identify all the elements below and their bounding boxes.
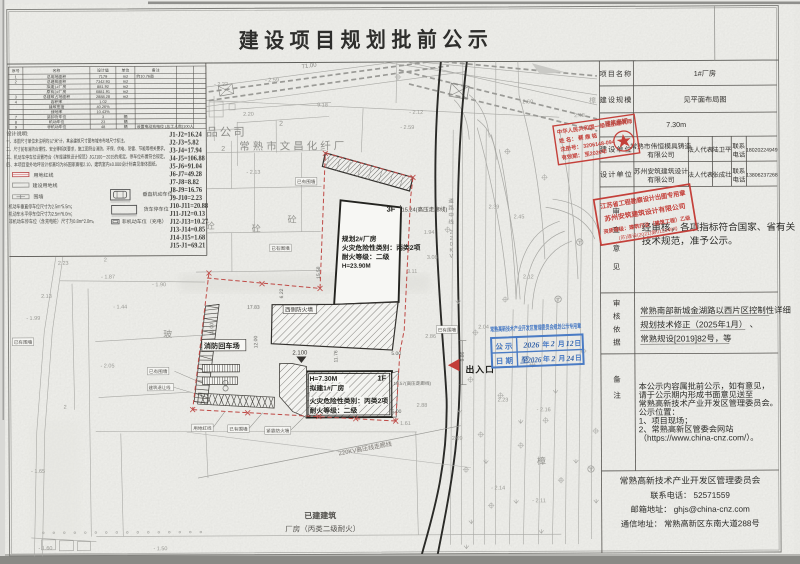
svg-text:15.58: 15.58	[316, 266, 322, 279]
svg-text:路: 路	[448, 204, 454, 212]
svg-text:- 1.61: - 1.61	[397, 421, 411, 427]
svg-text:常熟高新技术产业开发区管理委员会: 常熟高新技术产业开发区管理委员会	[620, 474, 761, 486]
svg-text:9: 9	[15, 125, 17, 130]
svg-text:单位: 单位	[121, 68, 129, 73]
svg-text:48: 48	[101, 124, 105, 129]
svg-text:年: 年	[543, 354, 550, 363]
svg-text:序号: 序号	[12, 68, 20, 73]
svg-text:见: 见	[613, 262, 621, 271]
svg-text:常熟高新技术产业开发区管理委员会。: 常熟高新技术产业开发区管理委员会。	[639, 398, 778, 409]
svg-text:月: 月	[557, 355, 565, 363]
svg-text:H=7.30M: H=7.30M	[309, 376, 337, 383]
svg-text:2.09: 2.09	[452, 436, 463, 442]
svg-text:规划技术修正（2025年1月） 、: 规划技术修正（2025年1月） 、	[640, 319, 758, 330]
svg-text:24: 24	[565, 354, 574, 363]
svg-text:电话: 电话	[732, 150, 745, 159]
svg-text:15.24(高压走廊线): 15.24(高压走廊线)	[402, 205, 448, 213]
svg-text:2.20: 2.20	[243, 112, 254, 118]
svg-text:耐火等级：二级: 耐火等级：二级	[310, 406, 358, 415]
svg-text:约10.76亩: 约10.76亩	[136, 74, 154, 79]
svg-text:- 1.50: - 1.50	[153, 546, 167, 552]
svg-text:日 期: 日 期	[496, 355, 514, 366]
svg-text:耐火等级：二级: 耐火等级：二级	[342, 252, 390, 261]
svg-text:砼: 砼	[288, 214, 297, 225]
svg-text:H=23.90M: H=23.90M	[342, 263, 371, 270]
svg-text:2.45: 2.45	[514, 214, 525, 220]
svg-text:备注: 备注	[152, 67, 160, 72]
svg-text:樟: 樟	[537, 455, 546, 466]
svg-text:公 示: 公 示	[495, 342, 513, 352]
svg-text:- 2.14: - 2.14	[491, 485, 505, 491]
svg-text:日: 日	[574, 339, 581, 347]
svg-text:常熟市文昌化纤厂: 常熟市文昌化纤厂	[239, 139, 347, 153]
svg-text:樟: 樟	[589, 96, 596, 105]
svg-text:9.86: 9.86	[460, 351, 466, 361]
svg-text:设计单位: 设计单位	[600, 170, 633, 179]
svg-text:9.18: 9.18	[317, 102, 328, 108]
svg-text:砼: 砼	[252, 223, 261, 234]
svg-text:厂房（丙类二级耐火）: 厂房（丙类二级耐火）	[285, 523, 360, 533]
svg-text:审: 审	[613, 298, 621, 308]
svg-text:已建建筑: 已建建筑	[304, 510, 336, 520]
svg-text:- 1.90: - 1.90	[152, 282, 166, 288]
svg-text:- 2.59: - 2.59	[400, 125, 414, 131]
svg-text:2: 2	[104, 258, 107, 264]
svg-text:联系: 联系	[732, 141, 745, 150]
svg-text:- 1.65: - 1.65	[31, 469, 45, 475]
svg-text:- 1.87: - 1.87	[101, 274, 115, 280]
svg-text:2: 2	[550, 354, 555, 363]
svg-text:联系: 联系	[733, 166, 746, 175]
svg-text:5.00: 5.00	[391, 351, 401, 357]
svg-text:3F: 3F	[387, 205, 396, 214]
svg-text:建 设 项 目 规 划 批 前 公 示: 建 设 项 目 规 划 批 前 公 示	[239, 28, 488, 53]
svg-text:7.30m: 7.30m	[666, 120, 686, 129]
svg-text:围墙: 围墙	[34, 193, 44, 200]
svg-text:- 2.13: - 2.13	[246, 170, 260, 176]
svg-text:规划2#厂房: 规划2#厂房	[342, 234, 377, 243]
svg-text:建设用地线: 建设用地线	[32, 182, 57, 189]
svg-text:2.23: 2.23	[58, 261, 69, 267]
svg-text:货车停车位: 货车停车位	[144, 206, 169, 213]
svg-text:电话: 电话	[733, 175, 746, 184]
svg-text:- 2.11: - 2.11	[532, 498, 546, 504]
svg-text:11.76: 11.76	[333, 350, 339, 362]
svg-text:火灾危险性类别：丙类2项: 火灾危险性类别：丙类2项	[310, 396, 389, 405]
svg-text:6.22: 6.22	[279, 288, 285, 298]
svg-text:通信地址： 常熟高新区东南大道288号: 通信地址： 常熟高新区东南大道288号	[621, 518, 760, 529]
svg-text:见平面布局图: 见平面布局图	[683, 95, 726, 104]
svg-text:垂直机动车位: 垂直机动车位	[143, 191, 173, 198]
svg-text:备: 备	[613, 374, 621, 384]
svg-text:2.04: 2.04	[478, 325, 489, 331]
svg-text:2.100: 2.100	[292, 350, 308, 356]
svg-text:2.88: 2.88	[417, 403, 428, 409]
svg-text:用地红线: 用地红线	[33, 172, 53, 179]
svg-text:月: 月	[557, 340, 565, 348]
svg-text:2.48: 2.48	[574, 113, 585, 119]
svg-text:2.23: 2.23	[498, 397, 509, 403]
svg-text:苏州安筑建筑设计: 苏州安筑建筑设计	[634, 166, 689, 175]
svg-text:道: 道	[448, 197, 454, 205]
svg-text:年: 年	[542, 340, 549, 349]
svg-text:常熟南部新城金湖路以西片区控制性详细: 常熟南部新城金湖路以西片区控制性详细	[640, 305, 791, 316]
svg-text:意: 意	[613, 243, 621, 253]
svg-text:拟建1#厂房: 拟建1#厂房	[310, 383, 345, 392]
svg-text:消防回车场: 消防回车场	[204, 341, 240, 350]
svg-text:张成壮: 张成壮	[712, 170, 732, 179]
svg-text:常熟规设[2019]82号，等: 常熟规设[2019]82号，等	[640, 333, 731, 343]
svg-text:设计说明:: 设计说明:	[6, 129, 28, 137]
svg-text:设置电动充电位 (总工人数)100人: 设置电动充电位 (总工人数)100人	[137, 124, 194, 129]
svg-text:名称: 名称	[52, 68, 60, 73]
svg-text:法人代表: 法人代表	[688, 145, 714, 154]
svg-text:品公司: 品公司	[206, 126, 247, 139]
svg-text:- 1.44: - 1.44	[113, 304, 127, 310]
svg-text:2: 2	[279, 121, 283, 128]
svg-text:2: 2	[221, 146, 225, 153]
svg-text:项目名称: 项目名称	[600, 69, 633, 78]
svg-text:5.00: 5.00	[392, 409, 402, 415]
svg-text:- 2.12: - 2.12	[409, 110, 423, 116]
svg-text:中: 中	[448, 211, 454, 219]
svg-text:有限公司: 有限公司	[647, 175, 674, 184]
svg-text:有限公司: 有限公司	[647, 150, 674, 159]
svg-text:2026: 2026	[526, 355, 541, 365]
svg-text:V: V	[450, 254, 454, 260]
svg-text:1#厂房: 1#厂房	[694, 69, 716, 78]
svg-text:陆卫平: 陆卫平	[712, 145, 732, 154]
svg-text:12: 12	[566, 339, 574, 348]
svg-text:12.00: 12.00	[253, 336, 259, 349]
svg-text:2: 2	[15, 79, 17, 84]
svg-text:线: 线	[448, 218, 454, 226]
svg-text:- 2.05: - 2.05	[100, 363, 114, 369]
svg-text:依: 依	[613, 324, 621, 334]
svg-text:17.83: 17.83	[247, 305, 260, 311]
svg-text:13806237268: 13806237268	[746, 173, 778, 179]
svg-text:- 2.22: - 2.22	[214, 82, 228, 88]
svg-text:1.94: 1.94	[424, 230, 435, 236]
svg-text:2.39: 2.39	[489, 204, 500, 210]
svg-text:J15-J1=69.21: J15-J1=69.21	[170, 240, 206, 249]
svg-text:2.13: 2.13	[41, 294, 52, 300]
svg-text:- 2.59: - 2.59	[265, 78, 279, 84]
svg-text:18020224949: 18020224949	[746, 148, 778, 154]
svg-text:- 1.60: - 1.60	[38, 546, 52, 552]
svg-text:3.08: 3.08	[427, 255, 438, 261]
svg-text:注: 注	[613, 390, 621, 400]
svg-text:联系电话： 52571559: 联系电话： 52571559	[650, 490, 730, 500]
svg-text:据: 据	[613, 338, 621, 347]
svg-text:设计值: 设计值	[97, 68, 109, 73]
svg-text:1F: 1F	[377, 374, 386, 383]
svg-text:- 2.60: - 2.60	[519, 99, 533, 105]
svg-text:出入口: 出入口	[465, 364, 494, 375]
svg-text:3.11: 3.11	[407, 269, 417, 275]
svg-text:2: 2	[550, 339, 555, 348]
svg-text:2: 2	[64, 405, 67, 411]
svg-text:建设规模: 建设规模	[600, 95, 633, 104]
svg-text:2.12: 2.12	[523, 274, 534, 280]
svg-text:m2: m2	[123, 94, 128, 99]
svg-text:- 2.16: - 2.16	[537, 407, 551, 413]
svg-text:辆: 辆	[124, 124, 128, 129]
svg-text:日: 日	[575, 354, 582, 362]
svg-text:核: 核	[613, 311, 621, 321]
svg-text:玻: 玻	[163, 328, 172, 339]
svg-text:非机动车位（充电）: 非机动车位（充电）	[122, 218, 167, 225]
svg-text:法人代表: 法人代表	[688, 170, 714, 179]
svg-text:（https://www.china-cnz.com/）。: （https://www.china-cnz.com/）。	[639, 433, 759, 443]
svg-text:西侧防火墙: 西侧防火墙	[285, 305, 313, 313]
svg-text:2026: 2026	[522, 340, 539, 350]
svg-text:- 1.99: - 1.99	[26, 316, 40, 322]
svg-text:非机动车位: 非机动车位	[47, 124, 67, 129]
svg-text:2.86: 2.86	[425, 334, 436, 340]
svg-text:12.00: 12.00	[209, 323, 215, 336]
svg-text:邮箱地址： ghjs@china-cnz.com: 邮箱地址： ghjs@china-cnz.com	[631, 504, 751, 515]
